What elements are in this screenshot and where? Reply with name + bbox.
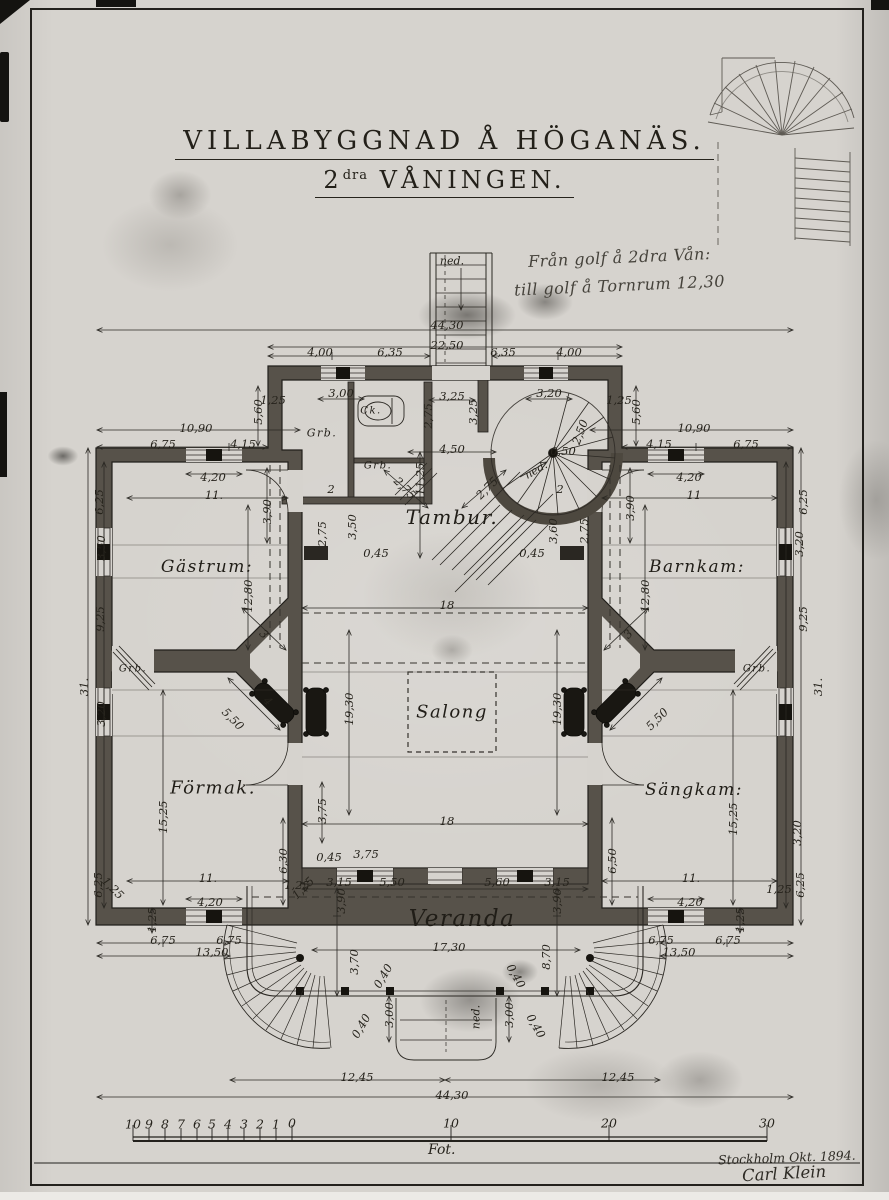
- dashed-lines: [252, 255, 638, 897]
- drawing-title: VILLABYGGNAD Å HÖGANÄS.: [0, 126, 889, 160]
- stoves: [249, 678, 642, 737]
- subtitle-text: 2dra VÅNINGEN.: [315, 166, 573, 198]
- scale-bar: [133, 1125, 767, 1141]
- dimension-lines: [88, 330, 801, 1097]
- scanned-drawing-sheet: 44,3022,504,006,356,354,003,003,253,201,…: [0, 0, 889, 1200]
- scale-unit-label: Fot.: [428, 1142, 455, 1158]
- doors: [246, 366, 644, 884]
- wc-fixture: [358, 396, 404, 426]
- title-text: VILLABYGGNAD Å HÖGANÄS.: [175, 126, 714, 160]
- fan-stairs: [224, 925, 667, 1060]
- paper-edge: [0, 1192, 889, 1200]
- top-stair: [430, 253, 492, 366]
- drawing-subtitle: 2dra VÅNINGEN.: [0, 166, 889, 198]
- windows: [96, 366, 793, 925]
